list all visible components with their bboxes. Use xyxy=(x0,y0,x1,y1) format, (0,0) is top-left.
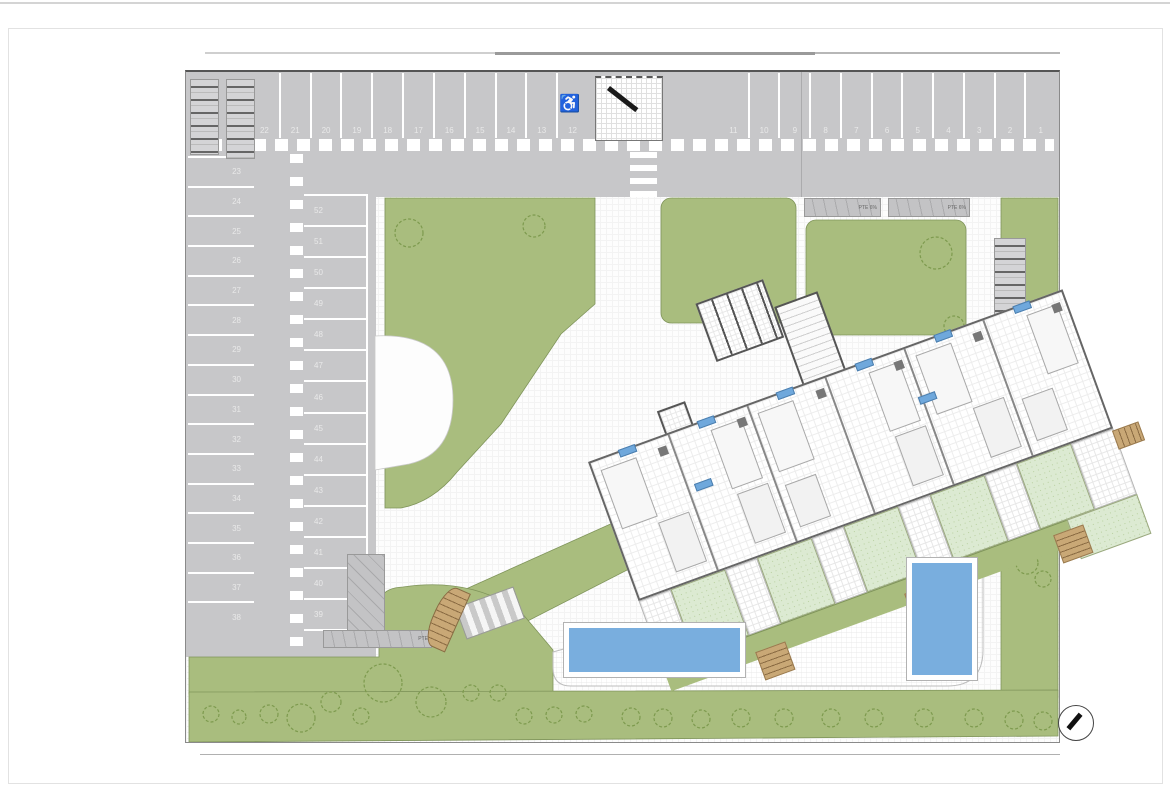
parking-stall: 28 xyxy=(188,306,254,336)
parking-stall: 47 xyxy=(304,351,366,382)
parking-stall: 51 xyxy=(304,227,366,258)
measure-line-left xyxy=(205,52,495,54)
parking-stall: 37 xyxy=(188,574,254,604)
parking-stall: 38 xyxy=(188,603,254,631)
parking-stall: 5 xyxy=(903,73,934,138)
site-plan-page: 2221201918171615141312 1110987654321 232… xyxy=(0,0,1170,785)
parking-stall: 21 xyxy=(281,73,312,138)
parking-stall: 24 xyxy=(188,188,254,218)
parking-stall: 14 xyxy=(497,73,528,138)
parking-stall: 23 xyxy=(188,158,254,188)
parking-stall: 43 xyxy=(304,476,366,507)
parking-stall: 32 xyxy=(188,425,254,455)
parking-stall: 48 xyxy=(304,320,366,351)
parking-stall: 30 xyxy=(188,366,254,396)
parking-stall: 27 xyxy=(188,277,254,307)
parking-stall: 26 xyxy=(188,247,254,277)
handicap-icon: ♿ xyxy=(552,92,588,116)
parking-stall: 1 xyxy=(1026,73,1055,138)
parking-stall: 7 xyxy=(842,73,873,138)
parking-stall: 2 xyxy=(996,73,1027,138)
bike-rack-left-2 xyxy=(226,79,255,159)
compass-north-icon xyxy=(1058,705,1094,741)
parking-stall: 4 xyxy=(934,73,965,138)
parking-stall: 49 xyxy=(304,289,366,320)
parking-stall: 6 xyxy=(873,73,904,138)
parking-stall: 25 xyxy=(188,217,254,247)
ramp-west-label: PTE xyxy=(323,630,432,648)
parking-stall: 42 xyxy=(304,507,366,538)
pool-main xyxy=(564,623,745,677)
measure-line-right xyxy=(815,52,1060,54)
parking-stall: 3 xyxy=(965,73,996,138)
parking-top-row-right: 1110987654321 xyxy=(719,73,1055,138)
parking-stall: 35 xyxy=(188,514,254,544)
measure-line-center xyxy=(495,52,815,55)
parking-left-column: 23242526272829303132333435363738 xyxy=(188,156,254,631)
parking-stall: 44 xyxy=(304,445,366,476)
parking-stall: 19 xyxy=(342,73,373,138)
parking-stall: 20 xyxy=(312,73,343,138)
road-joint-line xyxy=(801,72,802,197)
parking-stall: 34 xyxy=(188,485,254,515)
boundary-line-bottom xyxy=(200,754,1060,755)
parking-stall: 10 xyxy=(750,73,781,138)
parking-stall: 52 xyxy=(304,196,366,227)
ramp-ne-1: PTE 6% xyxy=(804,198,881,217)
site-plan: 2221201918171615141312 1110987654321 232… xyxy=(185,70,1060,743)
parking-stall: 18 xyxy=(373,73,404,138)
gate-barrier-icon xyxy=(607,86,638,112)
entrance-gate-structure xyxy=(595,76,663,141)
parking-stall: 16 xyxy=(435,73,466,138)
parking-stall: 36 xyxy=(188,544,254,574)
crosswalk-entrance xyxy=(630,152,657,197)
parking-stall: 50 xyxy=(304,258,366,289)
top-rule-line xyxy=(0,2,1170,4)
ramp-ne-2: PTE 6% xyxy=(888,198,970,217)
compass-needle xyxy=(1066,713,1082,731)
parking-stall: 46 xyxy=(304,382,366,413)
parking-stall: 17 xyxy=(404,73,435,138)
walkway-dashed-vertical xyxy=(290,154,303,654)
parking-stall: 31 xyxy=(188,396,254,426)
parking-stall: 9 xyxy=(780,73,811,138)
ramp-west xyxy=(347,554,385,634)
parking-top-row-left: 2221201918171615141312 xyxy=(250,73,587,138)
bike-rack-left-1 xyxy=(190,79,219,155)
parking-stall: 29 xyxy=(188,336,254,366)
pool-small xyxy=(907,558,977,680)
parking-stall: 15 xyxy=(466,73,497,138)
parking-stall: 45 xyxy=(304,414,366,445)
parking-stall: 11 xyxy=(719,73,750,138)
parking-stall: 8 xyxy=(811,73,842,138)
parking-stall: 33 xyxy=(188,455,254,485)
